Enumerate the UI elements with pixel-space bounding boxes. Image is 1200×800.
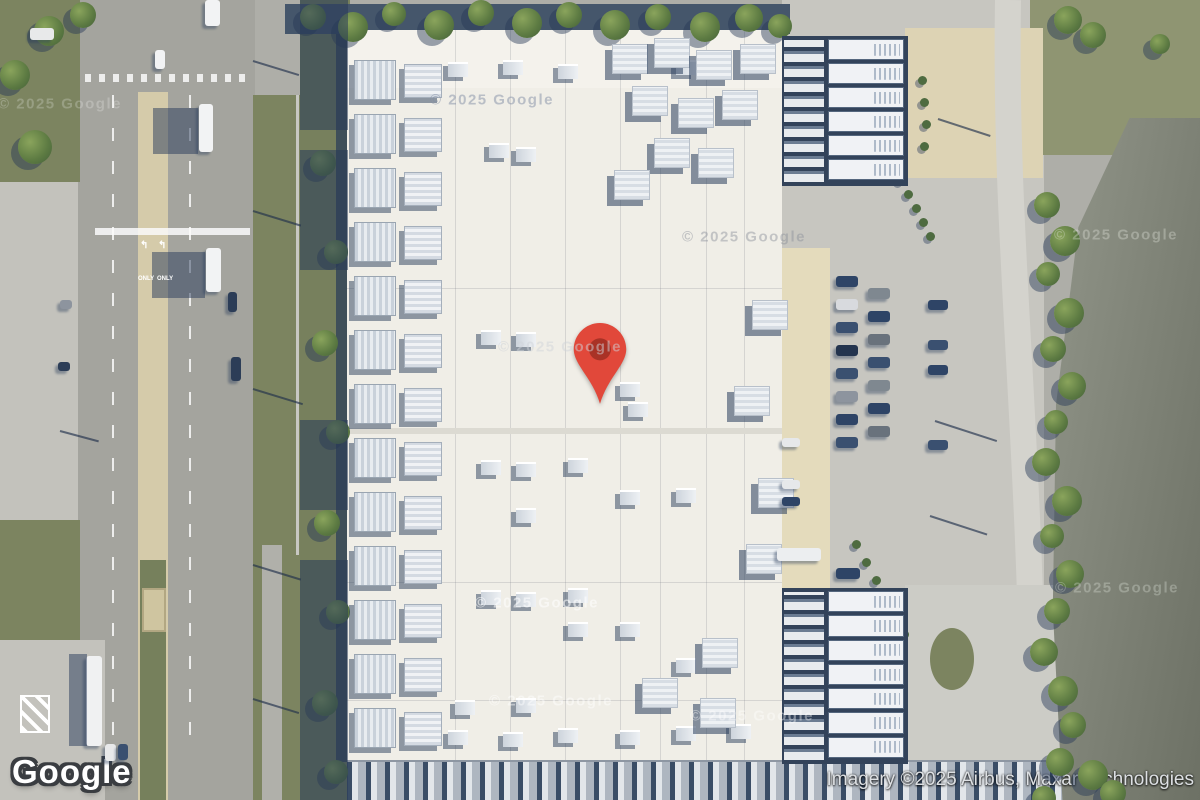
- tree: [556, 2, 582, 28]
- vehicle: [836, 276, 858, 287]
- rooftop-hvac-cluster: [350, 598, 446, 644]
- equipment-bay: [828, 111, 904, 132]
- hvac-unit: [354, 60, 396, 100]
- small-tree: [904, 190, 913, 199]
- tree: [18, 130, 52, 164]
- rooftop-hvac-cluster: [350, 706, 446, 752]
- rooftop-hvac-cluster: [350, 166, 446, 212]
- tree-shadow: [300, 420, 348, 510]
- roof-vent: [448, 62, 468, 77]
- hvac-unit: [404, 712, 442, 746]
- rooftop-hvac-unit: [654, 38, 690, 68]
- rooftop-hvac-cluster: [350, 544, 446, 590]
- vehicle: [782, 497, 800, 506]
- vehicle: [231, 357, 241, 381]
- vehicle: [199, 104, 213, 152]
- equipment-bay: [828, 591, 904, 612]
- roof-vent: [558, 64, 578, 79]
- tree: [735, 4, 763, 32]
- tree: [768, 14, 792, 38]
- hvac-unit: [404, 334, 442, 368]
- tree-shadow: [300, 150, 348, 270]
- vehicle: [836, 414, 858, 425]
- equipment-bay: [828, 87, 904, 108]
- equipment-mini-units: [784, 40, 824, 182]
- tree-shadow: [300, 700, 348, 800]
- equipment-bay: [828, 688, 904, 709]
- rooftop-hvac-unit: [752, 300, 788, 330]
- tree: [1060, 712, 1086, 738]
- vehicle: [777, 548, 821, 561]
- tree: [312, 330, 338, 356]
- rooftop-hvac-unit: [654, 138, 690, 168]
- tree: [314, 510, 340, 536]
- roof-vent: [620, 490, 640, 505]
- roof-vent: [676, 726, 696, 741]
- roof-vent: [503, 732, 523, 747]
- hvac-unit: [354, 546, 396, 586]
- rooftop-hvac-cluster: [350, 652, 446, 698]
- google-watermark: © 2025 Google: [489, 693, 613, 710]
- rooftop-hvac-unit: [678, 98, 714, 128]
- vehicle: [782, 438, 800, 447]
- equipment-bay: [828, 63, 904, 84]
- rooftop-hvac-cluster: [350, 220, 446, 266]
- roof-vent: [503, 60, 523, 75]
- tree: [1058, 372, 1086, 400]
- hvac-unit: [404, 442, 442, 476]
- tree: [512, 8, 542, 38]
- vehicle: [836, 322, 858, 333]
- vehicle: [928, 340, 948, 350]
- roof-vent: [516, 147, 536, 162]
- vehicle: [836, 368, 858, 379]
- google-watermark: © 2025 Google: [430, 92, 554, 109]
- equipment-bay: [828, 39, 904, 60]
- roof-vent: [620, 382, 640, 397]
- hvac-unit: [354, 492, 396, 532]
- tree: [1040, 336, 1066, 362]
- tree: [1054, 298, 1084, 328]
- tree: [70, 2, 96, 28]
- small-tree: [926, 232, 935, 241]
- roof-vent: [568, 622, 588, 637]
- vehicle: [86, 656, 102, 746]
- rooftop-hvac-unit: [612, 44, 648, 74]
- hvac-unit: [404, 550, 442, 584]
- roof-vent: [481, 460, 501, 475]
- hvac-unit: [354, 708, 396, 748]
- roof-vent: [489, 143, 509, 158]
- equipment-bay: [828, 615, 904, 636]
- small-tree: [872, 576, 881, 585]
- small-tree: [852, 540, 861, 549]
- vehicle-shadow: [152, 252, 205, 298]
- vehicle: [868, 380, 890, 391]
- only-road-marking: ONLY: [138, 276, 154, 282]
- vehicle: [105, 744, 116, 761]
- hvac-unit: [404, 658, 442, 692]
- rooftop-hvac-cluster: [350, 112, 446, 158]
- rooftop-hvac-cluster: [350, 328, 446, 374]
- vehicle: [228, 292, 237, 312]
- hvac-unit: [354, 438, 396, 478]
- tree: [690, 12, 720, 42]
- google-watermark: © 2025 Google: [682, 229, 806, 246]
- small-tree: [919, 218, 928, 227]
- tree: [600, 10, 630, 40]
- tree: [1032, 448, 1060, 476]
- equipment-bay: [828, 664, 904, 685]
- imagery-attribution: Imagery ©2025 Airbus, Maxar Technologies: [827, 769, 1194, 791]
- tree: [1030, 638, 1058, 666]
- vehicle: [206, 248, 221, 292]
- rooftop-hvac-cluster: [350, 382, 446, 428]
- equipment-bay: [828, 135, 904, 156]
- tree: [468, 0, 494, 26]
- tree: [1034, 192, 1060, 218]
- tree: [424, 10, 454, 40]
- tree: [0, 60, 30, 90]
- vehicle: [868, 288, 890, 299]
- equipment-bay: [828, 712, 904, 733]
- vehicle: [782, 480, 800, 489]
- hvac-unit: [354, 330, 396, 370]
- tree: [1052, 486, 1082, 516]
- rooftop-hvac-cluster: [350, 490, 446, 536]
- roof-vent: [516, 462, 536, 477]
- vehicle: [205, 0, 220, 26]
- google-watermark: © 2025 Google: [690, 708, 814, 725]
- equipment-bay: [828, 640, 904, 661]
- small-tree: [912, 204, 921, 213]
- google-watermark: © 2025 Google: [1055, 580, 1179, 597]
- vehicle: [928, 300, 948, 310]
- rooftop-hvac-cluster: [350, 436, 446, 482]
- hvac-unit: [354, 654, 396, 694]
- hvac-unit: [354, 114, 396, 154]
- small-tree: [922, 120, 931, 129]
- vehicle: [30, 28, 54, 40]
- roof-vent: [448, 730, 468, 745]
- vehicle: [836, 568, 860, 579]
- hvac-unit: [404, 604, 442, 638]
- vehicle-shadow: [69, 654, 87, 746]
- tree-shadow: [300, 0, 348, 130]
- only-road-marking: ONLY: [157, 276, 173, 282]
- tree: [645, 4, 671, 30]
- vehicle: [868, 403, 890, 414]
- roof-vent: [568, 458, 588, 473]
- hvac-unit: [404, 118, 442, 152]
- tree: [382, 2, 406, 26]
- vehicle: [928, 440, 948, 450]
- tree: [1080, 22, 1106, 48]
- roof-vent: [676, 488, 696, 503]
- turn-arrow-marking: ↰: [140, 240, 148, 251]
- rooftop-hvac-unit: [722, 90, 758, 120]
- hvac-unit: [404, 226, 442, 260]
- vehicle: [836, 299, 858, 310]
- rooftop-hvac-unit: [734, 386, 770, 416]
- hvac-unit: [404, 388, 442, 422]
- tree-shadow: [300, 560, 348, 700]
- hvac-unit: [354, 222, 396, 262]
- turn-arrow-marking: ↰: [158, 240, 166, 251]
- vehicle: [868, 357, 890, 368]
- google-watermark: © 2025 Google: [1054, 227, 1178, 244]
- satellite-map-canvas[interactable]: Google Imagery ©2025 Airbus, Maxar Techn…: [0, 0, 1200, 800]
- hvac-unit: [404, 280, 442, 314]
- google-watermark: © 2025 Google: [498, 339, 622, 356]
- equipment-bay: [828, 159, 904, 180]
- hvac-unit: [354, 168, 396, 208]
- tree: [1100, 780, 1126, 800]
- vehicle: [60, 300, 72, 309]
- equipment-bay: [828, 737, 904, 758]
- vehicle-shadow: [153, 108, 198, 154]
- vehicle: [868, 334, 890, 345]
- roof-seam: [660, 120, 661, 762]
- vehicle: [928, 365, 948, 375]
- vehicle: [118, 744, 128, 760]
- google-watermark: © 2025 Google: [0, 96, 122, 113]
- small-tree: [918, 76, 927, 85]
- vehicle: [868, 426, 890, 437]
- roof-vent: [676, 658, 696, 673]
- tree: [1046, 748, 1074, 776]
- grass-island: [930, 628, 974, 690]
- rooftop-hvac-unit: [698, 148, 734, 178]
- tree: [1044, 410, 1068, 434]
- rooftop-hvac-unit: [632, 86, 668, 116]
- rooftop-hvac-unit: [740, 44, 776, 74]
- rooftop-hvac-cluster: [350, 274, 446, 320]
- vehicle: [836, 437, 858, 448]
- roof-vent: [558, 728, 578, 743]
- tree: [1040, 524, 1064, 548]
- tree: [1054, 6, 1082, 34]
- rooftop-hvac-unit: [696, 50, 732, 80]
- tree: [1044, 598, 1070, 624]
- roof-vent: [620, 730, 640, 745]
- rooftop-hvac-unit: [642, 678, 678, 708]
- hvac-unit: [354, 600, 396, 640]
- roof-seam: [455, 30, 456, 762]
- hvac-unit: [404, 496, 442, 530]
- roof-seam: [565, 30, 566, 762]
- hvac-unit: [354, 384, 396, 424]
- vehicle: [58, 362, 70, 371]
- roof-vent: [516, 508, 536, 523]
- hvac-unit: [404, 172, 442, 206]
- vehicle: [155, 50, 165, 69]
- tree: [1150, 34, 1170, 54]
- vehicle: [836, 391, 858, 402]
- roof-vent: [455, 700, 475, 715]
- google-watermark: © 2025 Google: [475, 595, 599, 612]
- roof-vent: [620, 622, 640, 637]
- tree: [1036, 262, 1060, 286]
- roof-expansion-joint: [347, 428, 782, 434]
- hvac-unit: [354, 276, 396, 316]
- tree: [1048, 676, 1078, 706]
- small-tree: [920, 98, 929, 107]
- roof-seam: [510, 30, 511, 762]
- equipment-mini-units: [784, 592, 824, 760]
- vehicle: [836, 345, 858, 356]
- small-tree: [862, 558, 871, 567]
- rooftop-hvac-unit: [614, 170, 650, 200]
- vehicle: [868, 311, 890, 322]
- roof-vent: [628, 402, 648, 417]
- small-tree: [920, 142, 929, 151]
- rooftop-hvac-unit: [702, 638, 738, 668]
